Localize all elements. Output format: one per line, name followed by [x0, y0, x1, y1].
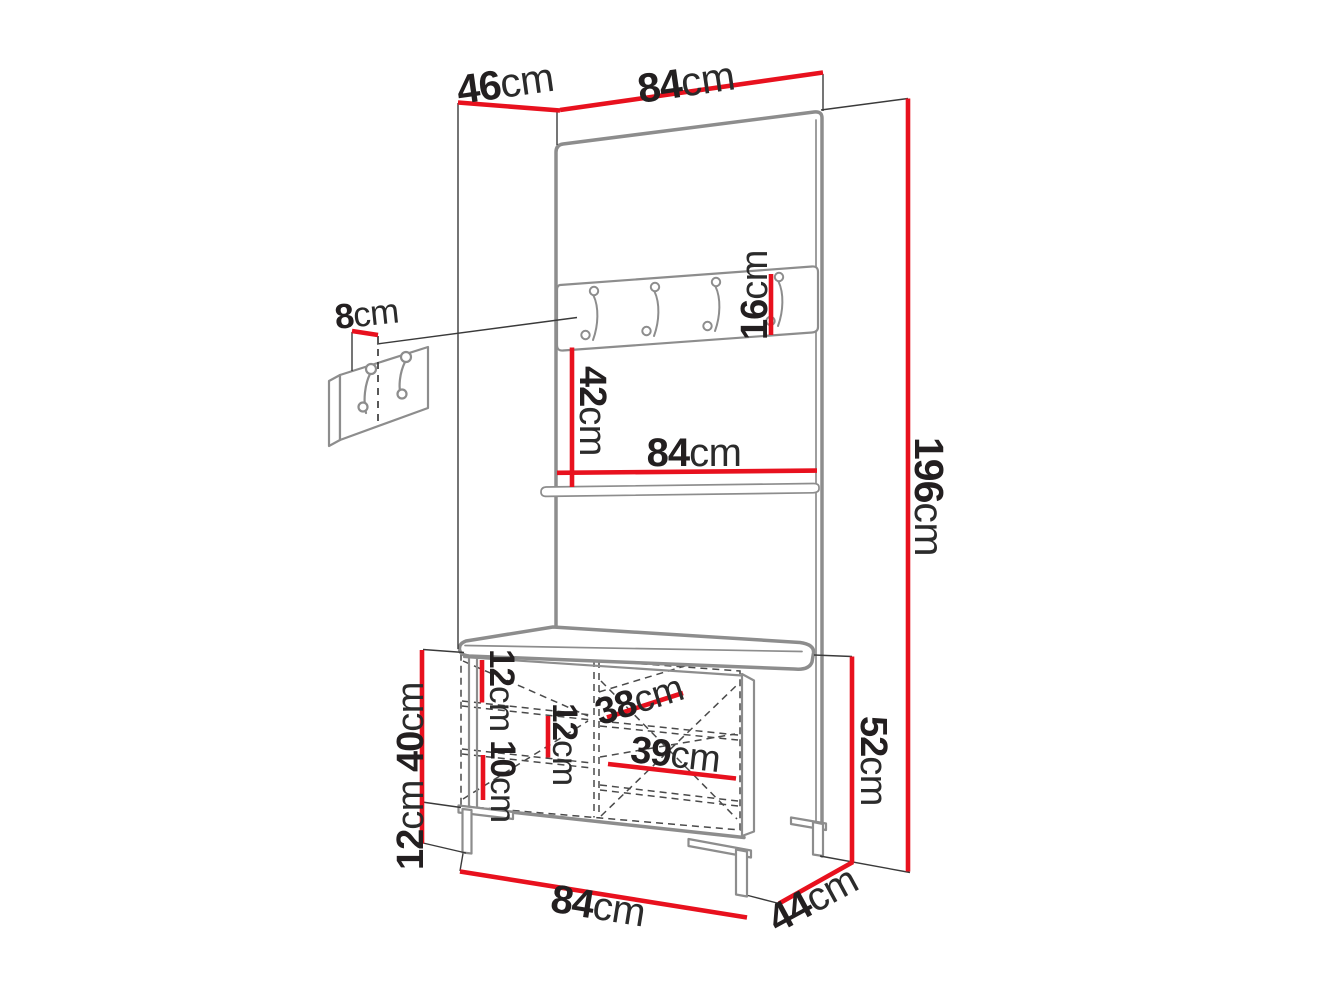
label-rail-to-shelf: 42cm	[571, 366, 613, 456]
right-shelf-bottom	[600, 785, 738, 806]
label-left-compartment: 38cm	[590, 667, 688, 734]
label-top-width: 84cm	[635, 52, 738, 112]
label-right-compartment: 39cm	[628, 729, 722, 781]
back-right-leg-post	[813, 822, 823, 856]
front-right-leg-post	[736, 850, 747, 897]
top-height-extension	[821, 99, 908, 111]
cabinet-right-side	[742, 674, 754, 836]
label-gap-middle: 12cm	[545, 703, 584, 786]
label-bench-depth: 44cm	[761, 858, 865, 942]
front-left-leg-post	[463, 809, 472, 854]
wall-panel-front	[340, 347, 428, 440]
dimension-labels: 46cm 84cm 196cm 16cm 42cm 84cm 8cm 40cm …	[333, 52, 952, 941]
label-panel-width: 84cm	[647, 431, 742, 475]
label-gap-bottom-left: 10cm	[483, 740, 522, 823]
label-hook-rail-height: 16cm	[734, 250, 776, 340]
wall-panel-side	[329, 375, 340, 446]
cushion-right-tick	[814, 655, 852, 657]
bottom-left-corner-tick	[460, 854, 463, 872]
dimension-diagram: 46cm 84cm 196cm 16cm 42cm 84cm 8cm 40cm …	[0, 0, 1320, 990]
label-total-height: 196cm	[906, 437, 952, 556]
label-leg-height: 12cm	[390, 780, 432, 870]
hook-panel-callout	[377, 318, 577, 345]
cabinet-divider	[594, 660, 599, 819]
label-bench-height: 52cm	[852, 716, 894, 806]
label-wall-hook-offset: 8cm	[333, 291, 401, 336]
panel-shelf	[541, 483, 819, 496]
label-top-depth: 46cm	[454, 54, 557, 113]
label-cabinet-height: 40cm	[390, 682, 432, 772]
label-bench-width: 84cm	[548, 877, 649, 936]
label-gap-top-left: 12cm	[482, 649, 521, 732]
cushion-left-tick	[423, 650, 464, 653]
wall-hook-panel	[329, 332, 428, 446]
cabinet-left-edge	[469, 659, 477, 809]
